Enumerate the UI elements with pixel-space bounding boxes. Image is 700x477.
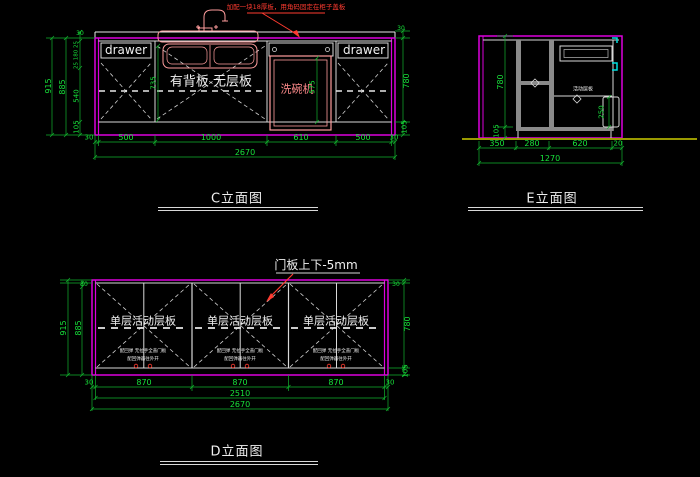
c-dim-inner-h: 885 (59, 79, 67, 94)
d-panel1-sub2: 配回弹器往外开 (127, 358, 159, 363)
cad-canvas: 加配一块18厚板，用角码固定在柜子盖板 drawer drawer 有背板 无层… (0, 0, 700, 477)
d-note: 门板上下-5mm (274, 259, 357, 271)
e-dim-b0: 350 (489, 140, 504, 148)
c-dim-toe-left: 105 (74, 120, 81, 133)
c-dim-top-left: 30 (76, 31, 84, 37)
c-dim-mid-left: 540 (74, 89, 81, 102)
d-panel2-sub1: 配回弹 无拉手全盖门板 (217, 350, 263, 355)
d-dim-total: 2670 (230, 401, 250, 409)
d-dim-b3: 870 (328, 379, 343, 387)
cad-linework (0, 0, 700, 477)
c-drawer-left-label: drawer (105, 44, 147, 56)
c-dim-b5: 30 (390, 135, 399, 142)
d-dim-top-left: 30 (80, 282, 88, 288)
d-panel3-sub1: 配回弹 无拉手全盖门板 (313, 350, 359, 355)
c-cabinet-label: 有背板 无层板 (170, 76, 252, 89)
e-dim-b3: 20 (614, 141, 623, 148)
c-title-underline (158, 207, 318, 211)
e-title-underline (468, 207, 643, 211)
d-dim-inner-h: 885 (75, 320, 83, 335)
e-dim-b2: 620 (572, 140, 587, 148)
d-dim-toe-right: 105 (403, 364, 410, 377)
e-view-title: E立面图 (526, 193, 577, 206)
d-panel3-label: 单层活动层板 (303, 316, 369, 327)
d-dim-b4: 30 (386, 380, 395, 387)
d-dim-inner-total: 2510 (230, 390, 250, 398)
c-dim-b3: 610 (293, 134, 308, 142)
e-dim-box: 250 (599, 105, 606, 118)
d-dim-b1: 870 (136, 379, 151, 387)
d-dim-b0: 30 (85, 380, 94, 387)
e-dim-toe: 105 (494, 124, 501, 137)
d-panel1-sub1: 配回弹 无拉手全盖门板 (120, 350, 166, 355)
e-shelf-label: 活动层板 (573, 88, 593, 93)
c-note-leader (247, 13, 325, 38)
d-dim-b2: 870 (232, 379, 247, 387)
e-dim-height: 780 (497, 74, 505, 89)
c-dim-opening: 735 (151, 76, 158, 89)
sink (158, 31, 258, 68)
c-dim-right-h: 780 (403, 73, 411, 88)
d-panel2-label: 单层活动层板 (207, 316, 273, 327)
d-panel1-label: 单层活动层板 (110, 316, 176, 327)
c-view-title: C立面图 (211, 193, 263, 206)
c-dim-total: 2670 (235, 149, 255, 157)
c-dim-top-right: 30 (397, 26, 405, 32)
d-dim-top-right: 30 (392, 282, 400, 288)
hinge-mark-icon (134, 364, 345, 368)
d-panel2-sub2: 配回弹器往外开 (224, 358, 256, 363)
c-dim-outer-h: 915 (45, 78, 53, 93)
c-dim-b0: 30 (85, 135, 94, 142)
d-view-title: D立面图 (210, 446, 263, 459)
c-drawer-right-label: drawer (343, 44, 385, 56)
c-dim-dishwasher-h: 575 (310, 80, 317, 93)
e-dim-total: 1270 (540, 155, 560, 163)
d-dim-outer-h: 915 (60, 320, 68, 335)
c-dim-drawer-stack: 25 180 25 (74, 41, 80, 69)
c-dim-b2: 1000 (201, 134, 221, 142)
c-dim-b1: 500 (118, 134, 133, 142)
d-panel3-sub2: 配回弹器往外开 (320, 358, 352, 363)
e-drawer-box (560, 46, 612, 61)
e-dim-b1: 280 (524, 140, 539, 148)
d-title-underline (160, 461, 318, 465)
faucet-icon (196, 10, 228, 31)
c-dim-toe-right: 105 (402, 120, 409, 133)
c-dim-b4: 500 (355, 134, 370, 142)
c-note: 加配一块18厚板，用角码固定在柜子盖板 (227, 4, 346, 11)
d-dim-right-h: 780 (404, 316, 412, 331)
